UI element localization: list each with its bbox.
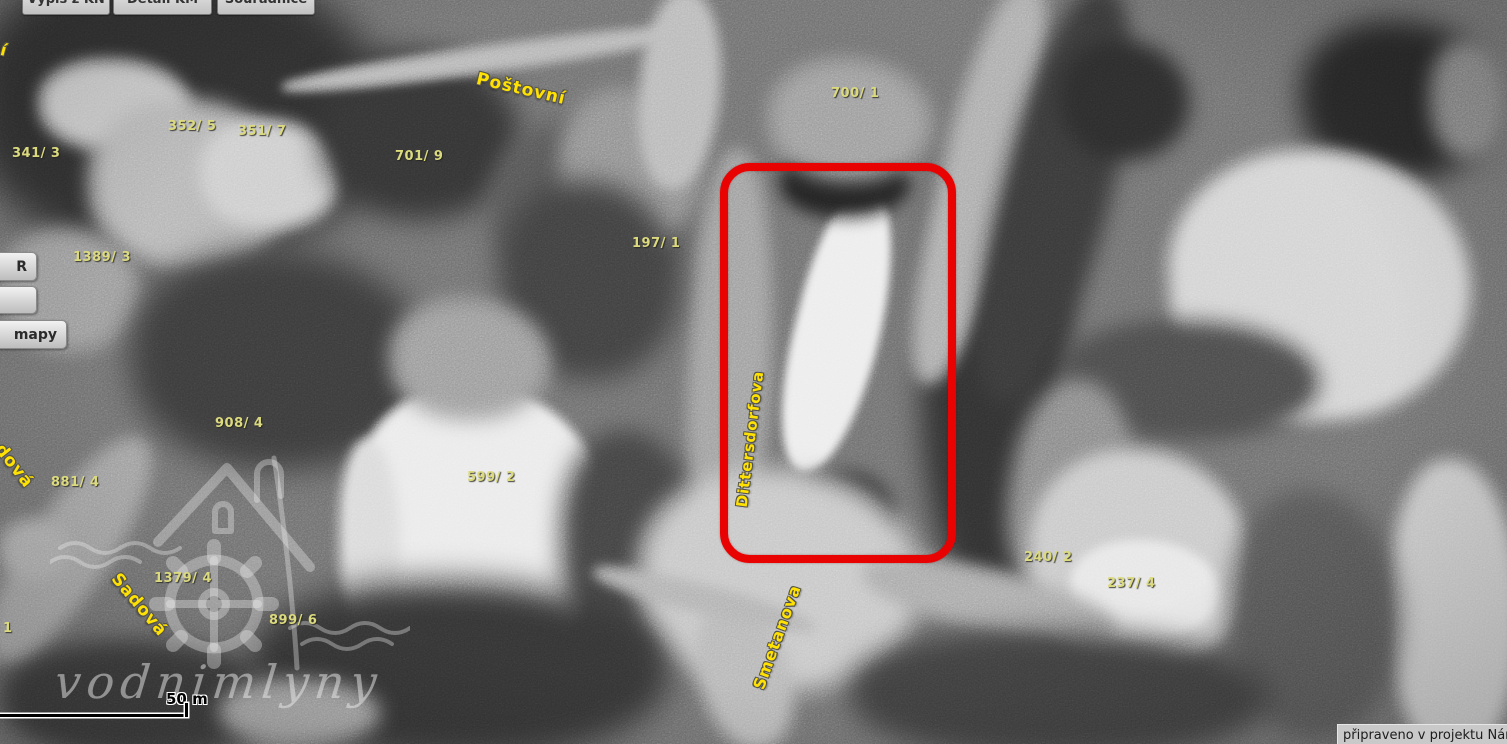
status-text: připraveno v projektu Národn <box>1343 728 1507 743</box>
parcel-number-label: 599/ 2 <box>467 470 515 485</box>
parcel-number-label: 197/ 1 <box>632 236 680 251</box>
photo-blob <box>1390 460 1507 744</box>
photo-blob <box>390 300 550 420</box>
photo-blob <box>1060 40 1190 160</box>
parcel-number-label: 352/ 5 <box>168 119 216 134</box>
map-viewer: vodnimlyny 352/ 5351/ 7341/ 3701/ 91389/… <box>0 0 1507 744</box>
parcel-number-label: 700/ 1 <box>831 86 879 101</box>
toolbar-button-sou-adnice[interactable]: Souřadnice <box>217 0 315 15</box>
parcel-number-label: 240/ 2 <box>1024 550 1072 565</box>
status-bar: připraveno v projektu Národn <box>1337 724 1507 744</box>
highlight-rectangle <box>720 163 956 563</box>
parcel-number-label: 341/ 3 <box>12 146 60 161</box>
parcel-number-label: 908/ 4 <box>215 416 263 431</box>
toolbar-button-v-pis-z-kn[interactable]: Výpis z KN <box>22 0 110 15</box>
photo-blob <box>770 60 930 180</box>
photo-blob <box>1430 40 1507 160</box>
photo-blob <box>220 680 380 744</box>
side-button-r[interactable]: R <box>0 252 37 281</box>
parcel-number-label: 899/ 6 <box>269 613 317 628</box>
parcel-number-label: 881/ 4 <box>51 475 99 490</box>
parcel-number-label: 1379/ 4 <box>154 571 212 586</box>
parcel-number-label: 1 <box>3 621 13 636</box>
parcel-number-label: 237/ 4 <box>1107 576 1155 591</box>
parcel-number-label: 1389/ 3 <box>73 250 131 265</box>
side-button-mapy[interactable]: mapy <box>0 320 67 349</box>
toolbar-button-detail-km[interactable]: Detail KM <box>113 0 212 15</box>
photo-blob <box>0 520 70 580</box>
scale-bar-line <box>0 714 188 717</box>
parcel-number-label: 351/ 7 <box>238 124 286 139</box>
side-button[interactable] <box>0 286 37 314</box>
scale-bar-tick <box>185 703 188 717</box>
parcel-number-label: 701/ 9 <box>395 149 443 164</box>
